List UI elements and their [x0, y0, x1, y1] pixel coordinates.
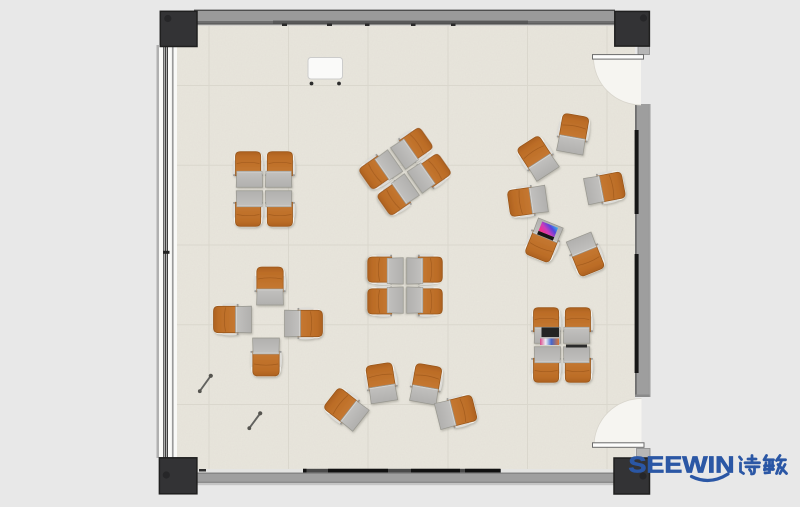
svg-text:SEEWIN: SEEWIN	[629, 452, 735, 478]
